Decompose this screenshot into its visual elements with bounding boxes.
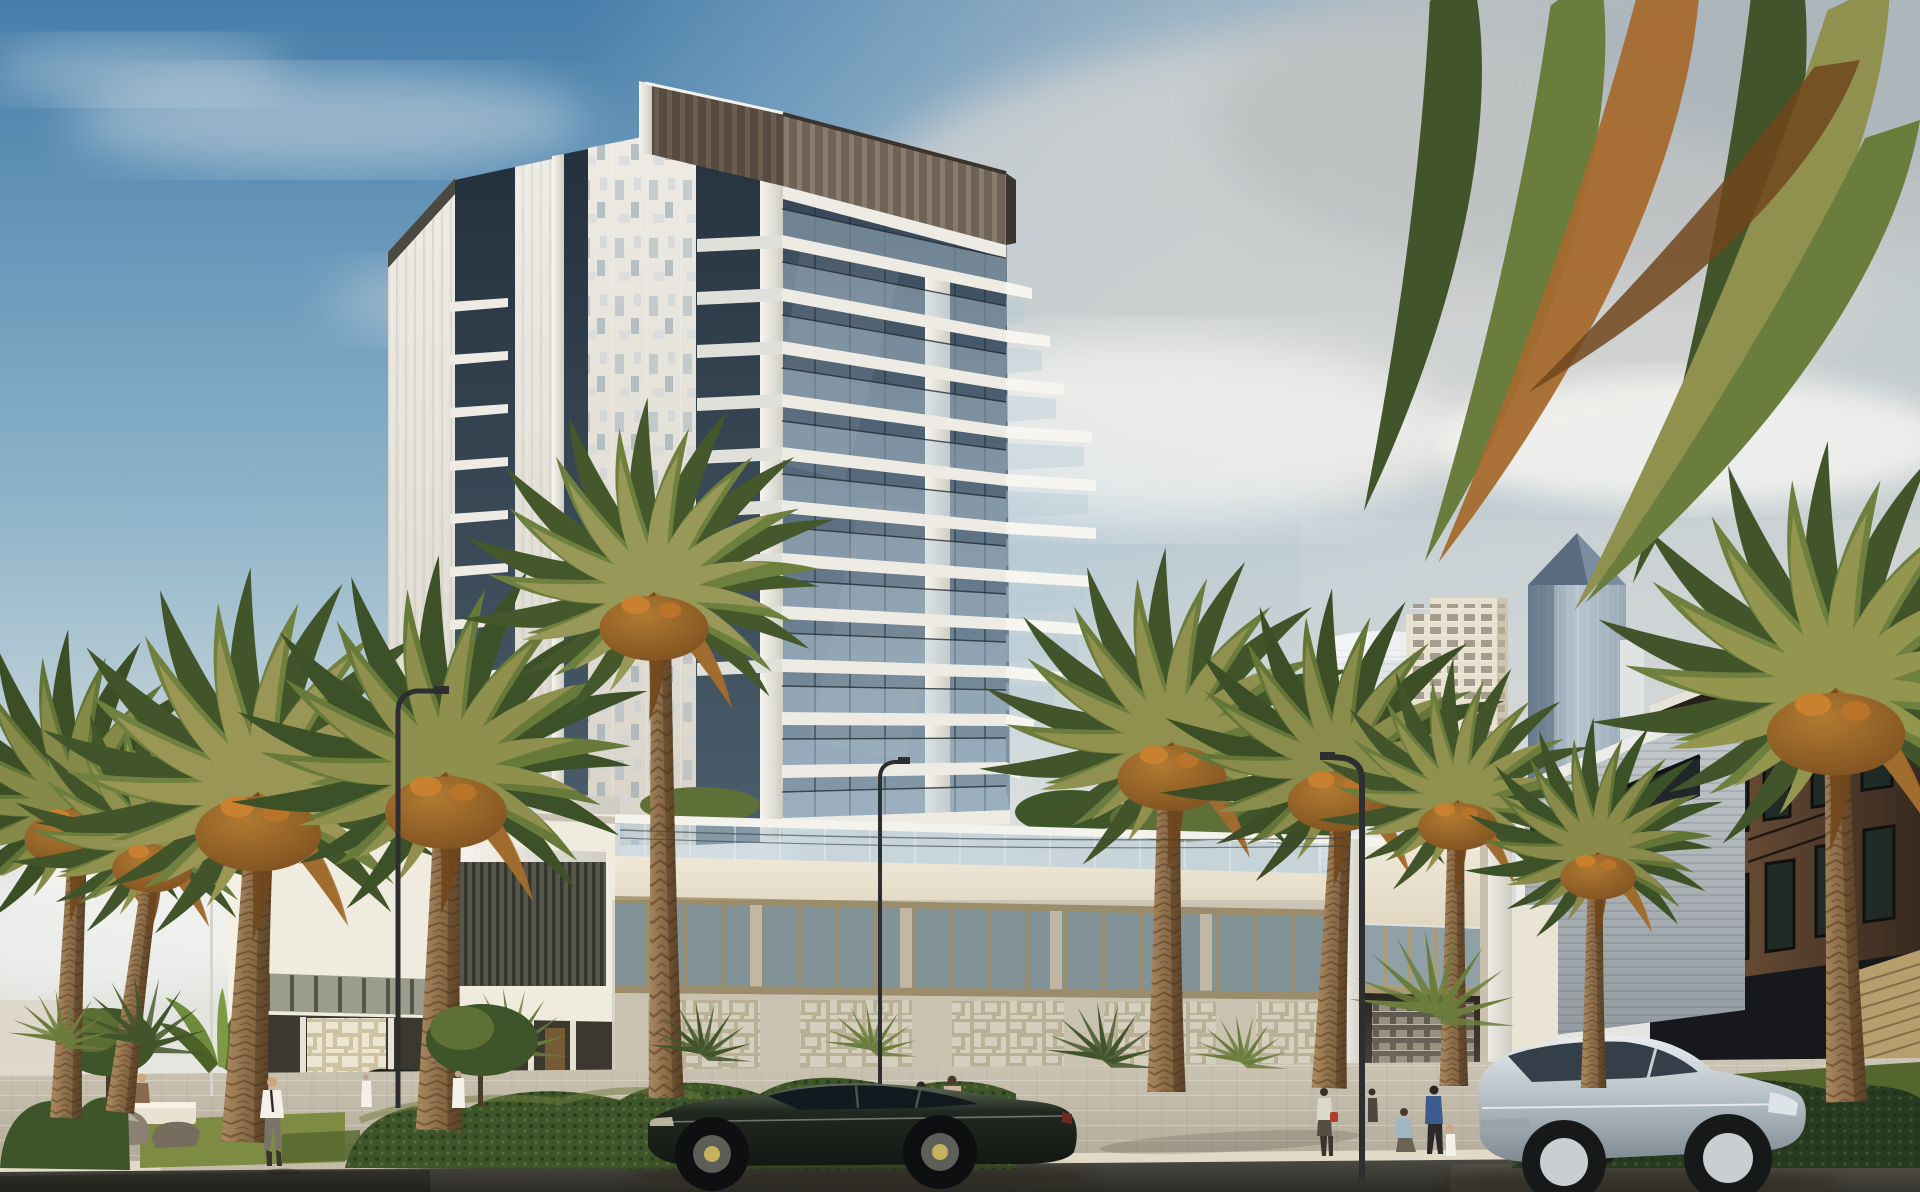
scene xyxy=(0,0,1920,1192)
olive-louver-screen xyxy=(452,862,606,986)
rendering-canvas xyxy=(0,0,1920,1192)
